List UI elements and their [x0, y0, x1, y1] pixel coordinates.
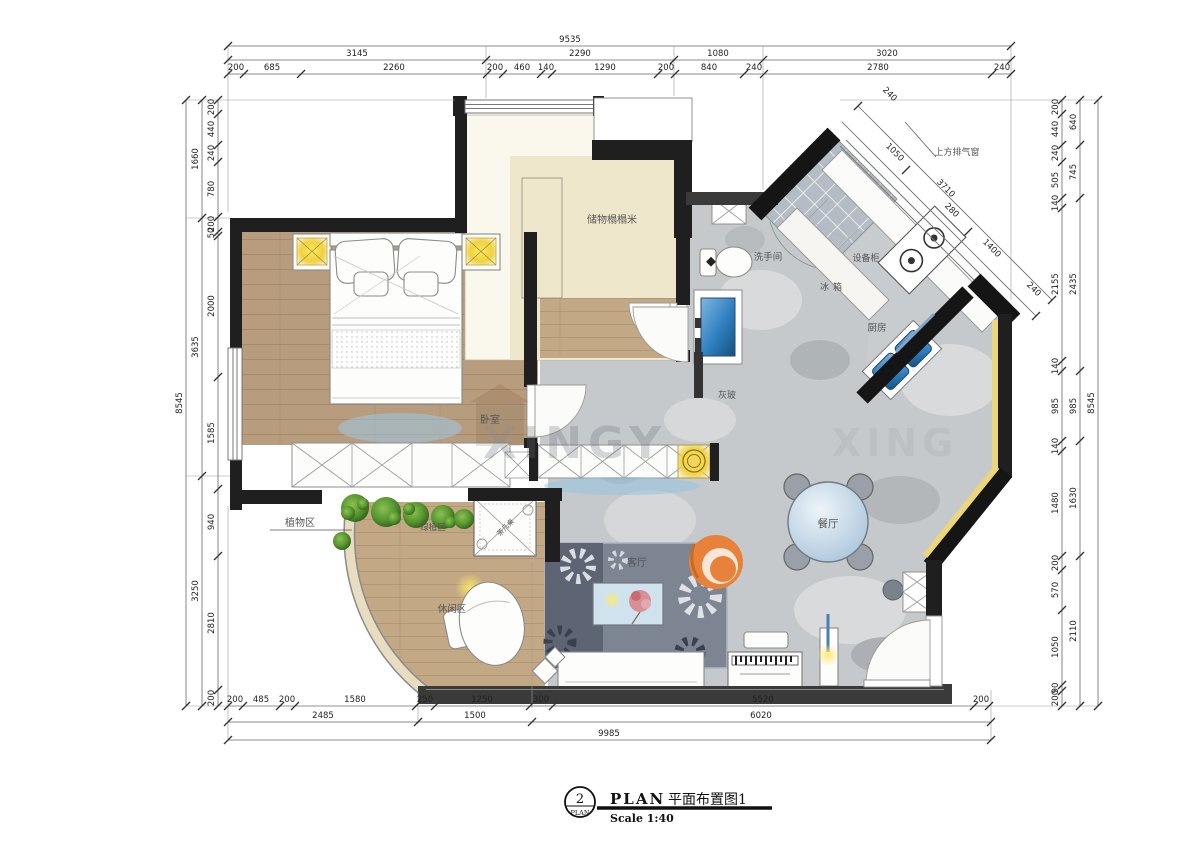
dim-label: 140 [1051, 195, 1061, 211]
label-exhaust-window: 上方排气窗 [934, 146, 979, 158]
handle [695, 338, 701, 354]
dim-label: 570 [1051, 582, 1061, 598]
tatami-top-right-nook [594, 98, 692, 142]
dim-label: 2435 [1069, 273, 1079, 295]
hall-lamp-box [678, 445, 710, 478]
label-bathroom: 洗手间 [754, 251, 783, 263]
dim-label: 200 [1051, 555, 1061, 571]
dim-label: 200 [207, 99, 217, 115]
dim-label: 8545 [175, 392, 185, 414]
label-plant-zone: 植物区 [285, 516, 315, 529]
dim-label: 240 [1024, 280, 1043, 299]
dim-label: 2485 [312, 711, 334, 721]
label-equipment-cabinet: 设备柜 [852, 252, 879, 264]
title-cn: 平面布置图1 [668, 792, 747, 808]
watermark-text-main: XINGY [483, 418, 667, 469]
nightstand-right [462, 234, 500, 270]
dim-label: 5520 [752, 695, 774, 705]
cushion [354, 272, 388, 296]
toilet [700, 247, 752, 277]
dim-label: 3635 [191, 336, 201, 358]
dim-label: 460 [514, 63, 530, 73]
dim-label: 1050 [1051, 636, 1061, 658]
dim-label: 440 [207, 121, 217, 137]
dims-bottom-total: 9985 [224, 729, 995, 744]
piano-bench [744, 632, 788, 648]
dim-label: 240 [994, 63, 1010, 73]
dim-label: 1080 [707, 49, 729, 59]
wall-bedroom-bottom-left [230, 490, 322, 504]
dim-label: 2260 [383, 63, 405, 73]
dim-label: 1050 [883, 141, 905, 163]
wall-bedroom-right [524, 232, 537, 387]
dim-label: 140 [1051, 438, 1061, 454]
wall-bedroom-top [230, 218, 455, 232]
wall-tatami-left [455, 103, 467, 233]
dims-left-mid: 166036353250 [191, 96, 206, 710]
wall-right-lower [926, 560, 942, 620]
dim-label: 940 [207, 514, 217, 530]
dim-label: 745 [1069, 164, 1079, 180]
tv-screen [593, 583, 663, 625]
dim-label: 240 [880, 85, 899, 104]
dim-label: 3145 [346, 49, 368, 59]
wall-tea-v [545, 488, 560, 562]
title-en: PLAN [610, 790, 665, 808]
dim-label: 3250 [191, 580, 201, 602]
dim-label: 240 [746, 63, 762, 73]
dims-right-inner: 2004402405051402155140985140148020057010… [1051, 96, 1066, 710]
egg-chair [689, 535, 743, 589]
dim-label: 1480 [1051, 492, 1061, 514]
dim-label: 1660 [191, 148, 201, 170]
dim-label: 840 [701, 63, 717, 73]
dims-right-mid: 640745243598516302110 [1069, 96, 1084, 710]
floor-plan-page: XINGY XING 储物榻榻米 卧室 洗手间 灰玻 上方排气窗 设备柜 冰箱 … [0, 0, 1200, 848]
wall-tatami-right-lower [676, 237, 690, 305]
label-gray-glass: 灰玻 [718, 389, 736, 401]
wardrobe [292, 443, 510, 487]
label-kitchen: 厨房 [867, 322, 886, 334]
label-green-plant-zone: 绿植区 [420, 522, 446, 533]
dim-label: 1400 [980, 237, 1002, 259]
pouf [883, 580, 903, 600]
dim-label: 485 [253, 695, 269, 705]
dim-label: 200 [1051, 690, 1061, 706]
wall-right-upper [998, 314, 1012, 478]
label-bedroom: 卧室 [480, 413, 500, 426]
dims-top-mid: 3145229010803020 [224, 49, 1015, 64]
dim-label: 3710 [934, 177, 956, 199]
label-dining: 餐厅 [818, 517, 839, 530]
label-fridge: 冰箱 [820, 281, 846, 293]
watermark-text-side: XING [832, 421, 958, 465]
title-block: 2 PLAN PLAN 平面布置图1 Scale 1:40 [565, 787, 772, 825]
blanket-dotted [332, 330, 460, 368]
dim-label: 1580 [344, 695, 366, 705]
hall-light-wash [544, 477, 700, 495]
dim-label: 780 [207, 181, 217, 197]
dim-label: 6020 [750, 711, 772, 721]
dim-label: 2155 [1051, 273, 1061, 295]
handle [695, 318, 701, 328]
dim-label: 2290 [569, 49, 591, 59]
dim-label: 200 [1051, 99, 1061, 115]
dim-tick [902, 166, 910, 174]
dim-label: 200 [227, 695, 243, 705]
label-living: 客厅 [627, 556, 647, 569]
dim-label: 1290 [594, 63, 616, 73]
dim-label: 9535 [559, 35, 581, 45]
tv-glow [603, 591, 621, 609]
bed-end-bench [338, 413, 462, 443]
dims-left-inner: 20044024078020050200015859402810200 [207, 96, 222, 710]
dim-tick [964, 228, 972, 236]
dim-label: 505 [1051, 172, 1061, 188]
nightstand-left [293, 234, 331, 270]
dim-label: 2780 [867, 63, 889, 73]
dim-label: 985 [1051, 398, 1061, 414]
dim-label: 140 [1051, 358, 1061, 374]
floor-plan-canvas: XINGY XING 储物榻榻米 卧室 洗手间 灰玻 上方排气窗 设备柜 冰箱 … [0, 0, 1200, 848]
window-bedroom-left [228, 348, 242, 460]
window-tatami-top [465, 100, 595, 113]
dim-label: 2000 [207, 295, 217, 317]
dim-label: 8545 [1087, 392, 1097, 414]
door-leaf-entry [864, 680, 930, 687]
dim-label: 50 [207, 228, 217, 239]
dim-label: 640 [1069, 114, 1079, 130]
dims-top-inner: 200685226020046014012902008402402780240 [224, 63, 1015, 78]
exhaust-leader-line [905, 122, 936, 157]
dim-label: 2110 [1069, 620, 1079, 642]
dim-label: 685 [264, 63, 280, 73]
label-tatami: 储物榻榻米 [587, 213, 637, 226]
curtain-strip-right [992, 320, 998, 472]
dim-label: 200 [973, 695, 989, 705]
dim-label: 1250 [471, 695, 493, 705]
dim-label: 140 [538, 63, 554, 73]
title-number: 2 [576, 792, 584, 807]
dim-label: 2810 [207, 612, 217, 634]
wall-stub-shoe-right [710, 443, 719, 481]
dim-label: 985 [1069, 398, 1079, 414]
gray-glass-partition [694, 352, 703, 398]
dim-label: 1585 [207, 422, 217, 444]
dims-right-outer: 8545 [1087, 96, 1102, 710]
dim-label: 9985 [598, 729, 620, 739]
dim-label: 1500 [464, 711, 486, 721]
title-scale: Scale 1:40 [610, 812, 674, 825]
dim-label: 300 [533, 695, 549, 705]
dims-bottom-mid: 248515006020 [224, 711, 995, 726]
sofa-cabinet [532, 647, 704, 688]
wall-tatami-right-upper [674, 140, 692, 238]
dims-left-outer: 8545 [175, 96, 190, 710]
label-leisure-zone: 休闲区 [438, 603, 467, 615]
wall-bottom [418, 686, 952, 704]
title-circle-label: PLAN [570, 809, 589, 817]
cushion [404, 272, 438, 296]
dim-label: 1630 [1069, 487, 1079, 509]
dim-label: 200 [279, 695, 295, 705]
dims-top-total: 9535 [224, 35, 1015, 50]
dim-label: 440 [1051, 121, 1061, 137]
dim-label: 3020 [876, 49, 898, 59]
